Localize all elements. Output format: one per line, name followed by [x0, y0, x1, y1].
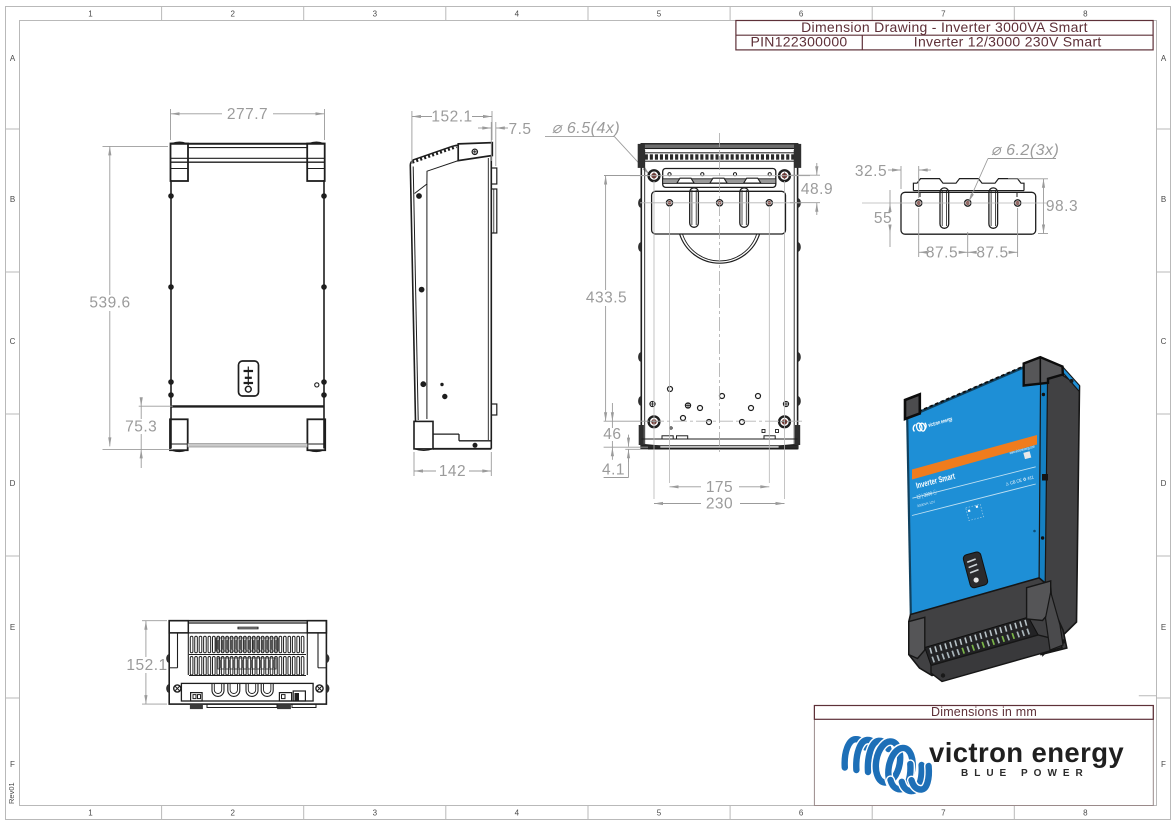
svg-text:C: C: [10, 337, 16, 346]
svg-text:C: C: [1161, 337, 1167, 346]
svg-text:87.5: 87.5: [926, 245, 958, 262]
svg-text:Dimension Drawing - Inverter 3: Dimension Drawing - Inverter 3000VA Smar…: [801, 19, 1088, 35]
svg-text:5: 5: [657, 809, 662, 818]
svg-text:142: 142: [439, 463, 466, 480]
svg-text:E: E: [10, 623, 15, 632]
svg-text:152.1: 152.1: [431, 109, 472, 126]
svg-text:6: 6: [799, 809, 804, 818]
svg-text:D: D: [1161, 479, 1167, 488]
svg-text:6: 6: [799, 10, 804, 19]
svg-text:32.5: 32.5: [855, 163, 887, 180]
svg-text:1: 1: [88, 10, 93, 19]
svg-text:Rev01: Rev01: [7, 782, 16, 804]
svg-text:B: B: [1161, 195, 1166, 204]
svg-text:4.1: 4.1: [602, 462, 625, 479]
svg-text:98.3: 98.3: [1046, 198, 1078, 215]
svg-text:Inverter 12/3000 230V Smart: Inverter 12/3000 230V Smart: [914, 34, 1102, 50]
svg-text:F: F: [10, 760, 15, 769]
svg-text:victron energy: victron energy: [929, 737, 1124, 768]
svg-text:48.9: 48.9: [801, 181, 833, 198]
svg-text:Dimensions in mm: Dimensions in mm: [931, 705, 1037, 719]
svg-text:8: 8: [1083, 809, 1088, 818]
svg-text:230: 230: [706, 496, 733, 513]
svg-text:BLUE POWER: BLUE POWER: [961, 768, 1089, 779]
svg-text:D: D: [10, 479, 16, 488]
svg-text:PIN122300000: PIN122300000: [750, 34, 847, 50]
svg-text:2: 2: [230, 10, 235, 19]
svg-text:539.6: 539.6: [89, 295, 130, 312]
svg-text:5: 5: [657, 10, 662, 19]
svg-text:433.5: 433.5: [586, 290, 627, 307]
svg-text:277.7: 277.7: [227, 106, 268, 123]
svg-text:B: B: [10, 195, 15, 204]
svg-text:7.5: 7.5: [508, 121, 531, 138]
svg-text:87.5: 87.5: [976, 245, 1008, 262]
svg-text:7: 7: [941, 809, 946, 818]
svg-text:3: 3: [373, 809, 378, 818]
svg-text:175: 175: [706, 479, 733, 496]
svg-text:⌀ 6.2(3x): ⌀ 6.2(3x): [991, 142, 1059, 159]
svg-text:55: 55: [874, 210, 892, 227]
svg-text:⌀ 6.5(4x): ⌀ 6.5(4x): [552, 120, 620, 137]
svg-text:152.1: 152.1: [126, 657, 167, 674]
svg-text:E: E: [1161, 623, 1166, 632]
svg-text:A: A: [10, 54, 16, 63]
svg-text:46: 46: [603, 426, 621, 443]
svg-text:4: 4: [515, 809, 520, 818]
svg-text:2: 2: [230, 809, 235, 818]
svg-text:3: 3: [373, 10, 378, 19]
svg-text:1: 1: [88, 809, 93, 818]
svg-text:F: F: [1161, 760, 1166, 769]
svg-text:4: 4: [515, 10, 520, 19]
svg-text:75.3: 75.3: [125, 419, 157, 436]
svg-text:8: 8: [1083, 10, 1088, 19]
svg-text:7: 7: [941, 10, 946, 19]
svg-text:A: A: [1161, 54, 1167, 63]
